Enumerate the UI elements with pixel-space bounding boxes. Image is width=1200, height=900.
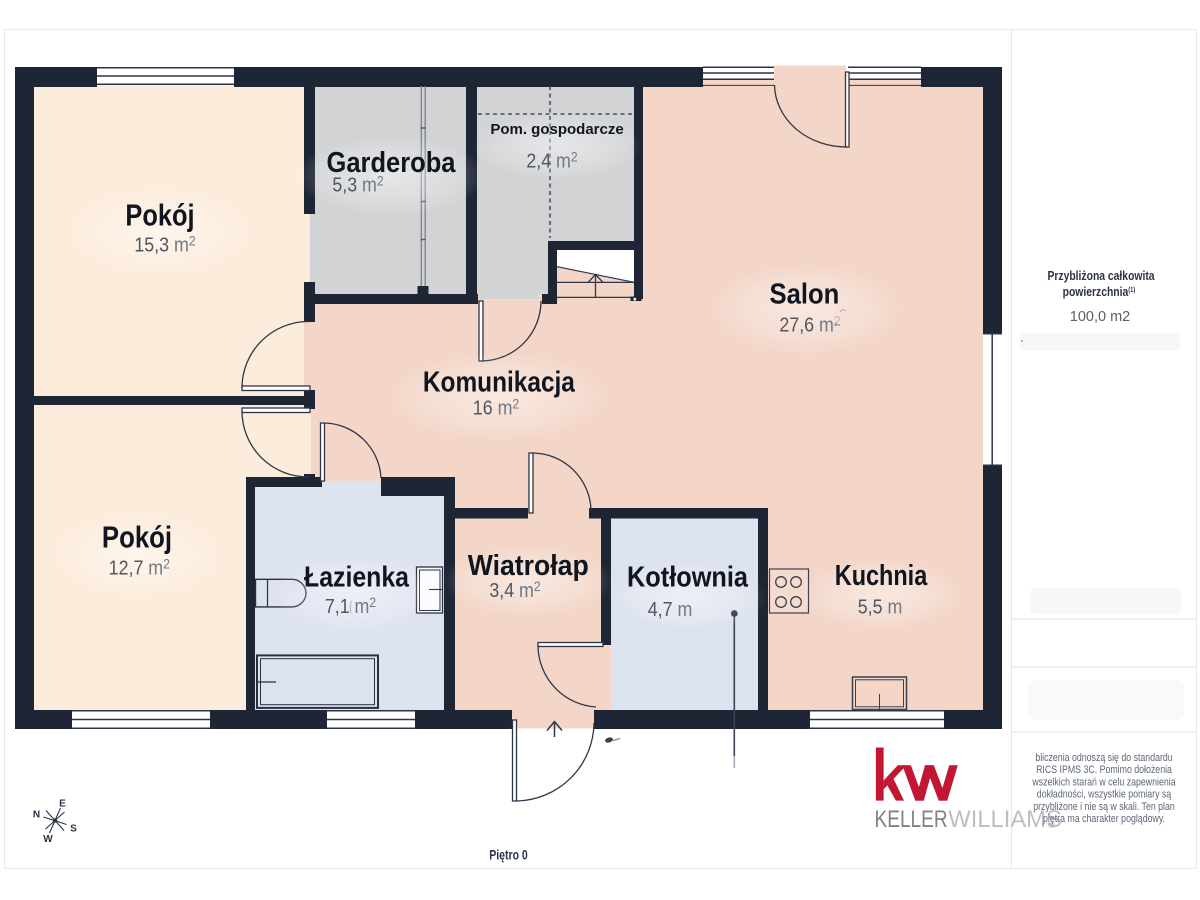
svg-text:Łazienka: Łazienka (304, 561, 410, 593)
svg-text:Pokój: Pokój (102, 519, 172, 554)
svg-text:Wiatrołap: Wiatrołap (468, 549, 589, 581)
svg-text:Pokój: Pokój (125, 198, 194, 232)
svg-text:Pom. gospodarcze: Pom. gospodarcze (490, 121, 623, 138)
svg-text:3,4 m2: 3,4 m2 (489, 578, 540, 602)
svg-text:przybliżone i nie są w skali.: przybliżone i nie są w skali. Ten plan (1033, 801, 1175, 813)
svg-text:2,4 m2: 2,4 m2 (526, 148, 577, 172)
svg-text:E: E (59, 799, 66, 810)
svg-text:Salon: Salon (769, 277, 839, 310)
svg-text:wszelkich starań w celu zapewn: wszelkich starań w celu zapewnienia (1032, 777, 1176, 789)
svg-text:dokładności, wszystkie pomiary: dokładności, wszystkie pomiary są (1037, 789, 1172, 801)
svg-text:15,3 m2: 15,3 m2 (134, 232, 195, 256)
svg-text:5,5 m: 5,5 m (858, 596, 903, 618)
svg-text:W: W (43, 834, 53, 845)
svg-text:powierzchnia(1): powierzchnia(1) (1063, 286, 1136, 299)
svg-text:Przybliżona całkowita: Przybliżona całkowita (1047, 270, 1155, 283)
svg-text:100,0 m2: 100,0 m2 (1070, 309, 1130, 325)
svg-text:7,1 m2: 7,1 m2 (325, 594, 376, 618)
svg-text:12,7 m2: 12,7 m2 (109, 556, 170, 580)
svg-text:27,6 m2: 27,6 m2 (779, 313, 840, 337)
svg-text:4,7 m: 4,7 m (648, 599, 693, 621)
svg-text:16 m2: 16 m2 (473, 395, 519, 419)
svg-text:piętra ma charakter poglądowy.: piętra ma charakter poglądowy. (1043, 813, 1165, 825)
svg-text:bliczenia odnoszą się do stand: bliczenia odnoszą się do standardu (1035, 752, 1172, 764)
svg-text:Komunikacja: Komunikacja (423, 366, 575, 398)
svg-text:Garderoba: Garderoba (327, 145, 457, 178)
svg-text:RICS IPMS 3C. Pomimo dołożenia: RICS IPMS 3C. Pomimo dołożenia (1036, 764, 1172, 776)
svg-text:Kuchnia: Kuchnia (835, 559, 928, 592)
svg-text:5,3 m2: 5,3 m2 (332, 173, 383, 197)
svg-text:Piętro 0: Piętro 0 (489, 847, 528, 863)
svg-text:S: S (70, 824, 77, 835)
svg-text:N: N (33, 810, 40, 821)
svg-text:Kotłownia: Kotłownia (627, 561, 749, 593)
svg-text:KELLER: KELLER (875, 805, 948, 833)
